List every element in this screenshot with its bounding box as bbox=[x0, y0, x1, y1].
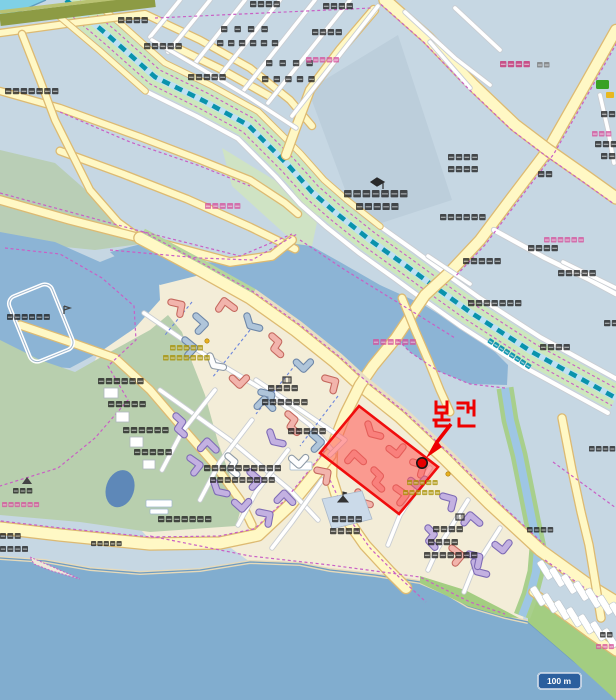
svg-text:100 m: 100 m bbox=[547, 676, 572, 686]
